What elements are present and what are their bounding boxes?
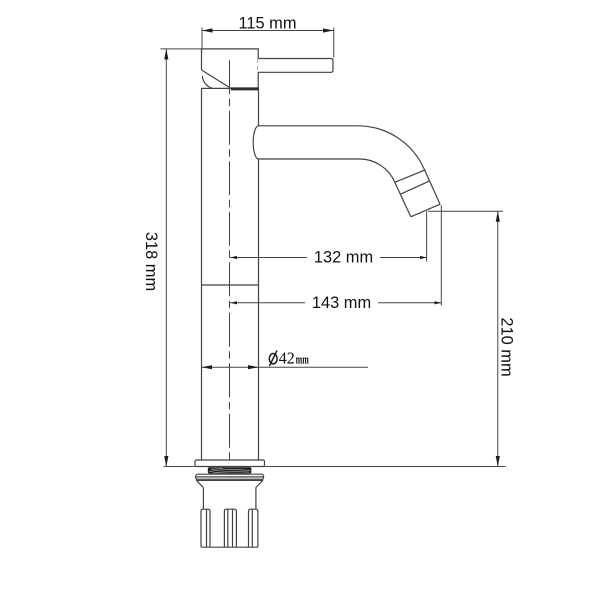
svg-text:318 mm: 318 mm xyxy=(142,232,160,291)
svg-text:132 mm: 132 mm xyxy=(314,249,373,267)
svg-text:mm: mm xyxy=(296,352,309,366)
svg-text:210 mm: 210 mm xyxy=(498,317,516,376)
svg-text:143 mm: 143 mm xyxy=(312,294,371,312)
svg-text:42: 42 xyxy=(279,348,295,367)
svg-text:115 mm: 115 mm xyxy=(239,15,297,33)
